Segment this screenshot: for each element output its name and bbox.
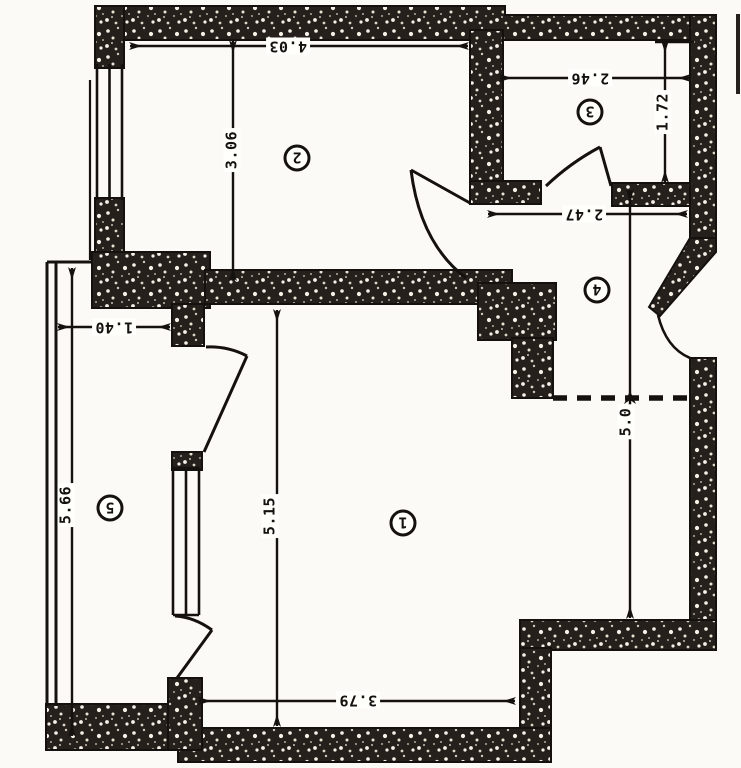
wall-divider-room2-room3 bbox=[470, 30, 503, 203]
wall-room3-bottom-right bbox=[612, 183, 692, 206]
dim-label-room1-height: 5.15 bbox=[262, 494, 279, 538]
room-number-1: 1 bbox=[390, 510, 417, 537]
dim-label-room3-width: 2.46 bbox=[568, 70, 612, 87]
dim-label-room3-height: 1.72 bbox=[655, 90, 672, 134]
wall-right-upper bbox=[690, 15, 716, 242]
doors-layer bbox=[175, 147, 690, 678]
room-number-3: 3 bbox=[577, 99, 604, 126]
scan-edge-artifact bbox=[736, 14, 740, 94]
door-entry-arc bbox=[658, 315, 690, 358]
floor-plan-page: 4.03 3.06 2.46 1.72 2.47 1.40 5.66 5.15 … bbox=[0, 0, 741, 768]
wall-balcony-door-jamb-lower bbox=[168, 678, 202, 750]
door-room3-hall bbox=[546, 147, 611, 186]
wall-entry-wedge bbox=[649, 238, 716, 316]
room-number-4: 4 bbox=[584, 277, 611, 304]
wall-right-lower bbox=[690, 358, 716, 650]
wall-top bbox=[95, 6, 716, 40]
dim-label-room2-width: 4.03 bbox=[266, 38, 310, 55]
dim-label-room2-height: 3.06 bbox=[224, 128, 241, 172]
opening-dashed-line bbox=[553, 391, 688, 404]
window-room2-left bbox=[97, 64, 122, 200]
wall-bottom-main bbox=[178, 728, 551, 762]
dim-label-balcony-width: 1.40 bbox=[92, 319, 136, 336]
room-number-2: 2 bbox=[284, 145, 311, 172]
wall-bottom-right-step bbox=[520, 620, 716, 650]
door-room2-hall bbox=[411, 170, 470, 278]
wall-balcony-door-jamb-upper bbox=[172, 304, 204, 346]
wall-central-block bbox=[478, 283, 556, 340]
door-balcony-upper bbox=[204, 347, 247, 452]
walls-layer bbox=[46, 6, 740, 762]
door-balcony-lower bbox=[175, 616, 212, 678]
balcony-railing bbox=[47, 80, 92, 706]
windows-layer bbox=[47, 64, 199, 706]
wall-hall-column bbox=[512, 338, 553, 398]
dim-label-balcony-length: 5.66 bbox=[58, 483, 75, 527]
wall-left-mid bbox=[95, 198, 124, 258]
wall-room3-bottom-left bbox=[470, 181, 541, 204]
wall-central-band bbox=[205, 270, 512, 304]
dim-label-hall-width: 2.47 bbox=[562, 206, 606, 223]
wall-left-upper bbox=[95, 6, 124, 68]
floor-plan-drawing: 4.03 3.06 2.46 1.72 2.47 1.40 5.66 5.15 … bbox=[0, 0, 741, 768]
plan-linework bbox=[0, 0, 741, 768]
window-room1-balcony bbox=[173, 468, 199, 615]
dim-label-room1-width: 3.79 bbox=[336, 692, 380, 709]
room-number-5: 5 bbox=[97, 495, 124, 522]
dim-label-right-height: 5.0 bbox=[618, 405, 635, 440]
wall-junction-block bbox=[92, 252, 210, 308]
